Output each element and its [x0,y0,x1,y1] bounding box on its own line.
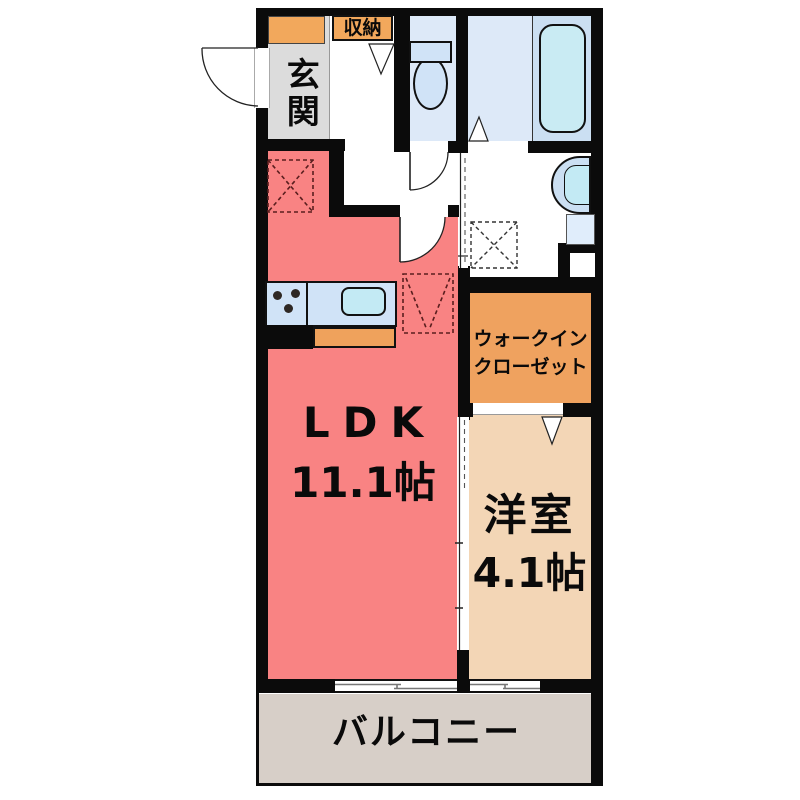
wall-wic-youshitsu-right [563,403,603,417]
ldk-label: LDK [268,400,458,446]
wall-toilet-left [394,8,410,152]
entrance-door-opening [254,48,270,108]
stove-burner-icon [284,304,293,313]
genkan-label: 玄関 [282,57,318,131]
toilet-tank-icon [409,41,452,63]
hallway-floor [344,151,458,205]
youshitsu-size-label: 4.1帖 [468,551,591,596]
ldk-door-opening [400,205,448,217]
floorplan-canvas: 収納 玄関 LDK 11.1帖 ウォークイン クローゼット 洋室 4.1帖 バル… [0,0,800,800]
wall-right [591,8,603,785]
kitchen-base-block [258,325,313,349]
kitchen-sink [341,287,386,316]
washbasin-counter [566,214,595,245]
wall-hall-ldk-a [329,205,400,217]
room-bath-floor [468,16,532,141]
wic-door-opening [473,403,563,415]
wall-toilet-bottom [448,141,468,153]
bathtub-icon [539,24,586,133]
toilet-door-opening [410,141,448,153]
wall-washroom-wic [458,277,568,293]
genkan-shoe-cabinet [268,16,325,44]
entrance-door-arc [202,48,258,106]
toilet-icon [413,57,448,110]
ldk-size-label: 11.1帖 [268,460,458,506]
wall-ldk-wic [458,266,470,420]
bath-door-opening [468,141,528,153]
balcony-rail-bottom [256,783,603,786]
room-youshitsu-floor [468,415,591,681]
wall-top [256,8,603,16]
washbasin-bowl-icon [564,165,590,205]
wall-hall-ldk-b [448,205,459,217]
kitchen-front-strip [313,327,396,348]
wic-label-line1: ウォークイン [470,326,591,354]
wall-toilet-bath-divider [456,8,468,141]
kitchen-counter-divider [306,282,308,326]
shuno-door-marker [369,44,394,74]
pipe-space-inner [570,253,595,277]
wall-ldk-youshitsu-pillar [457,648,469,693]
wall-wic-youshitsu-left [458,403,473,417]
youshitsu-balcony-window [470,679,540,693]
wall-left [256,8,268,693]
youshitsu-label: 洋室 [468,493,591,540]
wall-bath-bottom [528,141,603,153]
stove-burner-icon [273,291,282,300]
shuno-label: 収納 [343,18,381,39]
wic-label: ウォークイン クローゼット [470,326,591,381]
balcony-label: バルコニー [259,713,594,753]
ldk-balcony-window [335,679,457,693]
washroom-sliding-door [459,153,468,268]
stove-burner-icon [291,289,300,298]
wic-label-line2: クローゼット [470,354,591,382]
shuno-label-box: 収納 [332,15,393,41]
